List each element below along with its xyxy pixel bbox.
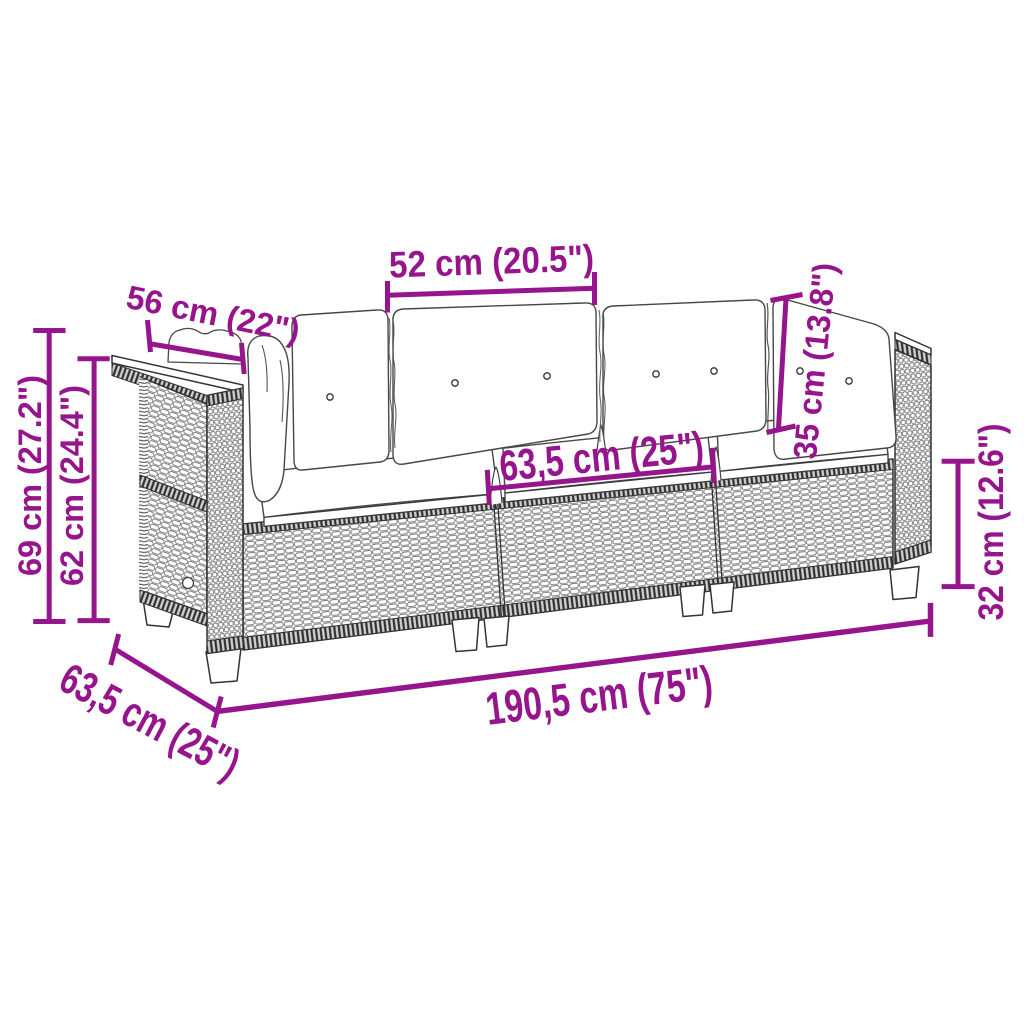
svg-text:69 cm (27.2"): 69 cm (27.2") <box>12 375 48 576</box>
svg-text:62 cm (24.4"): 62 cm (24.4") <box>54 385 90 586</box>
svg-text:52 cm (20.5"): 52 cm (20.5") <box>388 237 594 285</box>
svg-text:32 cm (12.6"): 32 cm (12.6") <box>972 424 1011 621</box>
